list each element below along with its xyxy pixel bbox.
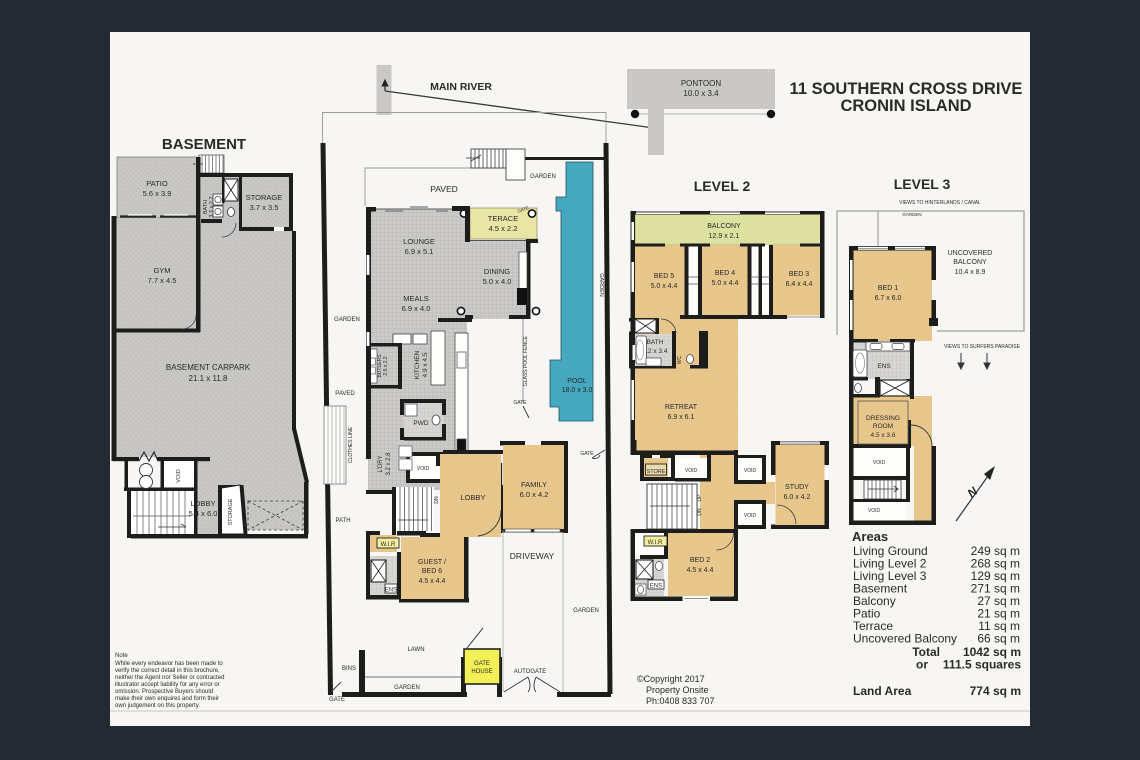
svg-text:HOUSE: HOUSE: [471, 669, 492, 675]
svg-text:BED 5: BED 5: [654, 273, 674, 280]
svg-text:2.5 x 2.2: 2.5 x 2.2: [383, 356, 389, 375]
svg-text:GATE: GATE: [580, 451, 594, 457]
svg-text:Land Area: Land Area: [853, 684, 912, 698]
svg-text:BASEMENT: BASEMENT: [162, 136, 246, 153]
svg-text:7.7 x 4.5: 7.7 x 4.5: [148, 276, 177, 285]
svg-text:WC: WC: [677, 355, 683, 364]
svg-text:POOL: POOL: [567, 378, 587, 385]
svg-text:DN: DN: [697, 508, 703, 516]
svg-text:GARDEN: GARDEN: [334, 317, 360, 323]
svg-text:BED 3: BED 3: [789, 271, 809, 278]
svg-text:STORAGE: STORAGE: [246, 193, 283, 202]
svg-text:UNCOVERED: UNCOVERED: [948, 250, 993, 257]
svg-text:5.4 x 6.0: 5.4 x 6.0: [189, 509, 218, 518]
svg-text:ENS: ENS: [877, 363, 891, 370]
svg-text:VOID: VOID: [685, 468, 698, 474]
svg-text:RETREAT: RETREAT: [665, 404, 698, 411]
svg-text:BED 1: BED 1: [878, 285, 898, 292]
svg-text:STORE: STORE: [647, 469, 666, 475]
svg-text:make their own enquires and fo: make their own enquires and form their: [115, 696, 219, 702]
svg-text:©Copyright 2017: ©Copyright 2017: [637, 674, 705, 684]
svg-text:LOUNGE: LOUNGE: [403, 237, 435, 246]
svg-text:6.9 x 5.1: 6.9 x 5.1: [405, 247, 434, 256]
svg-text:ENS: ENS: [385, 588, 397, 594]
svg-text:DN: DN: [434, 496, 440, 504]
svg-text:4.9 x 4.5: 4.9 x 4.5: [422, 352, 429, 377]
svg-text:Property Onsite: Property Onsite: [646, 685, 709, 695]
svg-text:While every endeavor has been: While every endeavor has been made to: [115, 661, 223, 667]
svg-text:PAVED: PAVED: [335, 391, 355, 397]
svg-text:3.2 x 2.8: 3.2 x 2.8: [386, 452, 392, 476]
svg-text:verify the correct detail in t: verify the correct detail in this brochu…: [115, 668, 220, 674]
svg-text:11 SOUTHERN CROSS DRIVE: 11 SOUTHERN CROSS DRIVE: [790, 80, 1023, 98]
svg-text:4.5 x 4.4: 4.5 x 4.4: [687, 567, 714, 574]
svg-text:VOID: VOID: [873, 460, 886, 466]
svg-text:6.0 x 4.2: 6.0 x 4.2: [520, 490, 549, 499]
svg-text:BALCONY: BALCONY: [707, 223, 741, 230]
svg-text:6.9 x 4.0: 6.9 x 4.0: [402, 304, 431, 313]
svg-text:VOID: VOID: [176, 469, 182, 482]
svg-text:LOBBY: LOBBY: [190, 499, 215, 508]
svg-text:FAMILY: FAMILY: [521, 480, 547, 489]
svg-text:PATH: PATH: [335, 518, 350, 524]
svg-text:5.0 x 4.4: 5.0 x 4.4: [712, 280, 739, 287]
svg-text:21.1 x 11.8: 21.1 x 11.8: [189, 374, 229, 383]
svg-text:illustrator accept liability f: illustrator accept liability for any err…: [115, 682, 220, 688]
svg-text:GYM: GYM: [153, 266, 170, 275]
svg-text:Ph:0408 833 707: Ph:0408 833 707: [646, 696, 715, 706]
svg-text:6.9 x 6.1: 6.9 x 6.1: [668, 414, 695, 421]
svg-text:LOBBY: LOBBY: [460, 493, 485, 502]
svg-text:VOID: VOID: [744, 468, 757, 474]
svg-text:CLOTHES LINE: CLOTHES LINE: [348, 426, 354, 463]
svg-text:VOID: VOID: [417, 466, 430, 472]
svg-text:CRONIN ISLAND: CRONIN ISLAND: [840, 97, 971, 115]
svg-text:L'DRY: L'DRY: [378, 455, 384, 472]
svg-text:6.0 x 4.2: 6.0 x 4.2: [784, 494, 811, 501]
svg-text:Note: Note: [115, 653, 128, 659]
svg-text:neither the Agent nor Seller o: neither the Agent nor Seller or contract…: [115, 675, 224, 681]
svg-text:GARDEN: GARDEN: [573, 608, 599, 614]
svg-text:PAVED: PAVED: [430, 184, 458, 194]
svg-text:5.0 x 4.4: 5.0 x 4.4: [651, 283, 678, 290]
svg-text:TERACE: TERACE: [488, 214, 518, 223]
svg-text:774 sq m: 774 sq m: [970, 684, 1021, 698]
svg-text:GARDEN: GARDEN: [530, 174, 556, 180]
svg-text:6.4 x 4.4: 6.4 x 4.4: [786, 281, 813, 288]
svg-text:Uncovered Balcony: Uncovered Balcony: [853, 632, 957, 646]
svg-text:GATE: GATE: [329, 697, 345, 703]
svg-text:AUTOGATE: AUTOGATE: [514, 669, 546, 675]
svg-text:PATIO: PATIO: [146, 179, 168, 188]
svg-text:STORAGE: STORAGE: [228, 498, 234, 525]
svg-text:STUDY: STUDY: [785, 484, 809, 491]
svg-text:VIEWS TO SURFERS PARADISE: VIEWS TO SURFERS PARADISE: [944, 344, 1021, 350]
svg-text:LEVEL 2: LEVEL 2: [694, 178, 751, 194]
svg-text:GARDEN: GARDEN: [394, 685, 420, 691]
svg-text:12.9 x 2.1: 12.9 x 2.1: [709, 233, 740, 240]
svg-text:KITCHEN: KITCHEN: [414, 350, 421, 379]
svg-text:4.5 x 2.2: 4.5 x 2.2: [489, 224, 518, 233]
svg-text:W.I.R: W.I.R: [648, 540, 663, 546]
svg-text:3.7 x 3.5: 3.7 x 3.5: [250, 203, 279, 212]
svg-text:10.0 x 3.4: 10.0 x 3.4: [683, 89, 719, 98]
svg-text:PWD: PWD: [413, 420, 428, 427]
svg-text:BED 4: BED 4: [715, 270, 735, 277]
svg-text:or: or: [916, 658, 928, 672]
svg-text:VIEWS TO HINTERLANDS / CANAL: VIEWS TO HINTERLANDS / CANAL: [899, 200, 981, 206]
svg-text:LEVEL 3: LEVEL 3: [894, 176, 951, 192]
svg-text:PONTOON: PONTOON: [681, 79, 722, 88]
svg-text:5.0 x 4.0: 5.0 x 4.0: [483, 277, 512, 286]
svg-text:MAIN RIVER: MAIN RIVER: [430, 81, 492, 93]
svg-text:66 sq m: 66 sq m: [977, 632, 1020, 646]
svg-text:own judgement on this property: own judgement on this property.: [115, 703, 200, 709]
svg-text:LAWN: LAWN: [407, 647, 424, 653]
svg-text:GATE: GATE: [474, 661, 490, 667]
svg-text:4.5 x 4.4: 4.5 x 4.4: [419, 578, 446, 585]
svg-text:GARDEN: GARDEN: [902, 212, 921, 217]
svg-text:Areas: Areas: [852, 529, 888, 544]
svg-text:GLASS POOL FENCE: GLASS POOL FENCE: [523, 335, 529, 386]
svg-text:BALCONY: BALCONY: [953, 259, 987, 266]
svg-text:DRESSING: DRESSING: [866, 415, 900, 422]
svg-text:omission. Prospective Buyers s: omission. Prospective Buyers should: [115, 689, 213, 695]
svg-text:5.6 x 3.9: 5.6 x 3.9: [143, 189, 172, 198]
svg-text:VOID: VOID: [744, 513, 757, 519]
svg-text:GUEST /: GUEST /: [418, 559, 446, 566]
svg-text:DRIVEWAY: DRIVEWAY: [510, 551, 555, 561]
svg-text:GARDEN: GARDEN: [598, 273, 604, 297]
svg-text:BED 6: BED 6: [422, 568, 442, 575]
svg-text:111.5 squares: 111.5 squares: [943, 658, 1021, 672]
svg-text:GATE: GATE: [513, 400, 527, 406]
svg-text:BED 2: BED 2: [690, 557, 710, 564]
svg-text:10.4 x 8.9: 10.4 x 8.9: [955, 269, 986, 276]
svg-text:MEALS: MEALS: [403, 294, 428, 303]
svg-text:6.7 x 6.0: 6.7 x 6.0: [875, 295, 902, 302]
svg-text:4.5 x 3.6: 4.5 x 3.6: [871, 432, 896, 439]
svg-text:VOID: VOID: [868, 508, 881, 514]
svg-text:UP: UP: [697, 494, 703, 502]
svg-text:ROOM: ROOM: [873, 423, 893, 430]
svg-text:DINING: DINING: [484, 267, 510, 276]
svg-text:BASEMENT CARPARK: BASEMENT CARPARK: [166, 363, 251, 372]
svg-text:BATH: BATH: [647, 339, 664, 346]
svg-text:18.0 x 3.0: 18.0 x 3.0: [562, 387, 593, 394]
svg-text:ENS: ENS: [650, 584, 662, 590]
svg-text:W.I.R: W.I.R: [381, 542, 396, 548]
svg-text:BINS: BINS: [342, 666, 356, 672]
